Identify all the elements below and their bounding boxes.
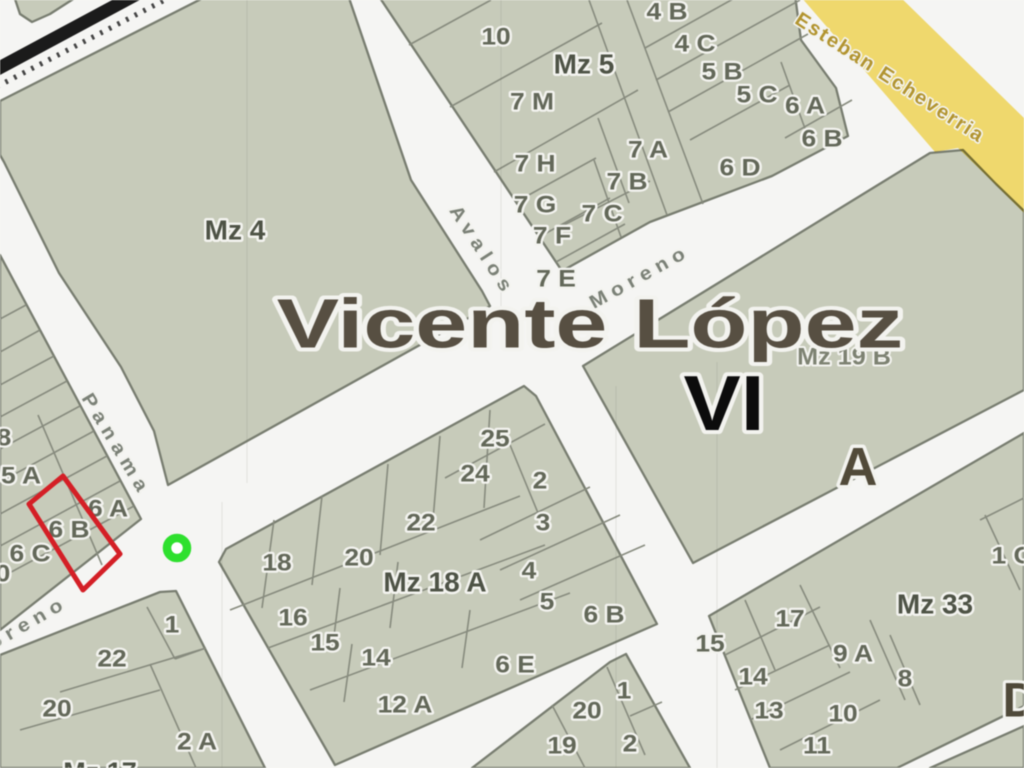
svg-text:Mz 5: Mz 5 — [554, 49, 615, 80]
svg-text:14: 14 — [361, 645, 390, 672]
svg-text:5 C: 5 C — [736, 82, 777, 109]
svg-text:4: 4 — [522, 558, 537, 585]
svg-text:1 0: 1 0 — [0, 561, 10, 588]
svg-text:25: 25 — [480, 426, 509, 453]
svg-text:2: 2 — [623, 731, 638, 758]
svg-text:22: 22 — [97, 646, 126, 673]
svg-text:2 A: 2 A — [177, 729, 217, 756]
svg-text:7 H: 7 H — [514, 151, 555, 178]
svg-text:18: 18 — [262, 550, 291, 577]
svg-text:D: D — [1003, 675, 1024, 728]
svg-text:22: 22 — [406, 510, 435, 537]
svg-text:20: 20 — [344, 545, 373, 572]
svg-text:14: 14 — [738, 664, 767, 691]
svg-text:1 C: 1 C — [991, 543, 1024, 570]
svg-text:15: 15 — [695, 631, 724, 658]
svg-text:4 C: 4 C — [674, 31, 715, 58]
svg-text:6 A: 6 A — [785, 93, 825, 120]
svg-text:7 B: 7 B — [606, 169, 647, 196]
svg-text:7 A: 7 A — [628, 137, 668, 164]
svg-text:7 F: 7 F — [533, 223, 571, 250]
svg-text:6 B: 6 B — [801, 126, 842, 153]
svg-text:6 C: 6 C — [9, 541, 50, 568]
svg-text:24: 24 — [460, 461, 489, 488]
svg-text:Mz 33: Mz 33 — [897, 589, 973, 620]
svg-text:7 M: 7 M — [510, 89, 554, 116]
svg-text:7 C: 7 C — [581, 201, 622, 228]
svg-text:1: 1 — [617, 678, 632, 705]
svg-text:Mz 17: Mz 17 — [63, 757, 137, 768]
svg-text:Mz 18 A: Mz 18 A — [383, 567, 486, 598]
svg-text:16: 16 — [278, 605, 307, 632]
svg-text:2: 2 — [533, 468, 548, 495]
svg-text:10: 10 — [828, 701, 857, 728]
svg-text:12 A: 12 A — [378, 692, 433, 719]
svg-text:Mz 4: Mz 4 — [205, 215, 266, 246]
svg-text:1: 1 — [165, 612, 180, 639]
svg-text:17: 17 — [775, 606, 804, 633]
svg-text:9 A: 9 A — [833, 641, 873, 668]
svg-text:8: 8 — [898, 666, 913, 693]
svg-text:15: 15 — [310, 630, 339, 657]
svg-text:11: 11 — [803, 733, 831, 760]
svg-text:A: A — [839, 437, 878, 497]
svg-text:3: 3 — [536, 510, 551, 537]
svg-text:6 B: 6 B — [48, 517, 89, 544]
svg-text:Vicente López: Vicente López — [277, 285, 904, 363]
svg-text:6 D: 6 D — [719, 155, 760, 182]
svg-text:6 E: 6 E — [495, 652, 535, 679]
svg-text:VI: VI — [683, 361, 764, 448]
svg-text:10: 10 — [481, 24, 510, 51]
svg-text:19: 19 — [547, 733, 576, 760]
svg-text:20: 20 — [572, 698, 601, 725]
svg-text:13: 13 — [754, 698, 783, 725]
svg-text:8: 8 — [0, 425, 11, 452]
svg-text:5 A: 5 A — [1, 463, 41, 490]
svg-text:6 B: 6 B — [583, 602, 624, 629]
svg-text:20: 20 — [42, 696, 71, 723]
svg-text:5: 5 — [540, 589, 555, 616]
svg-text:7 G: 7 G — [514, 192, 557, 219]
svg-text:4 B: 4 B — [646, 0, 687, 25]
